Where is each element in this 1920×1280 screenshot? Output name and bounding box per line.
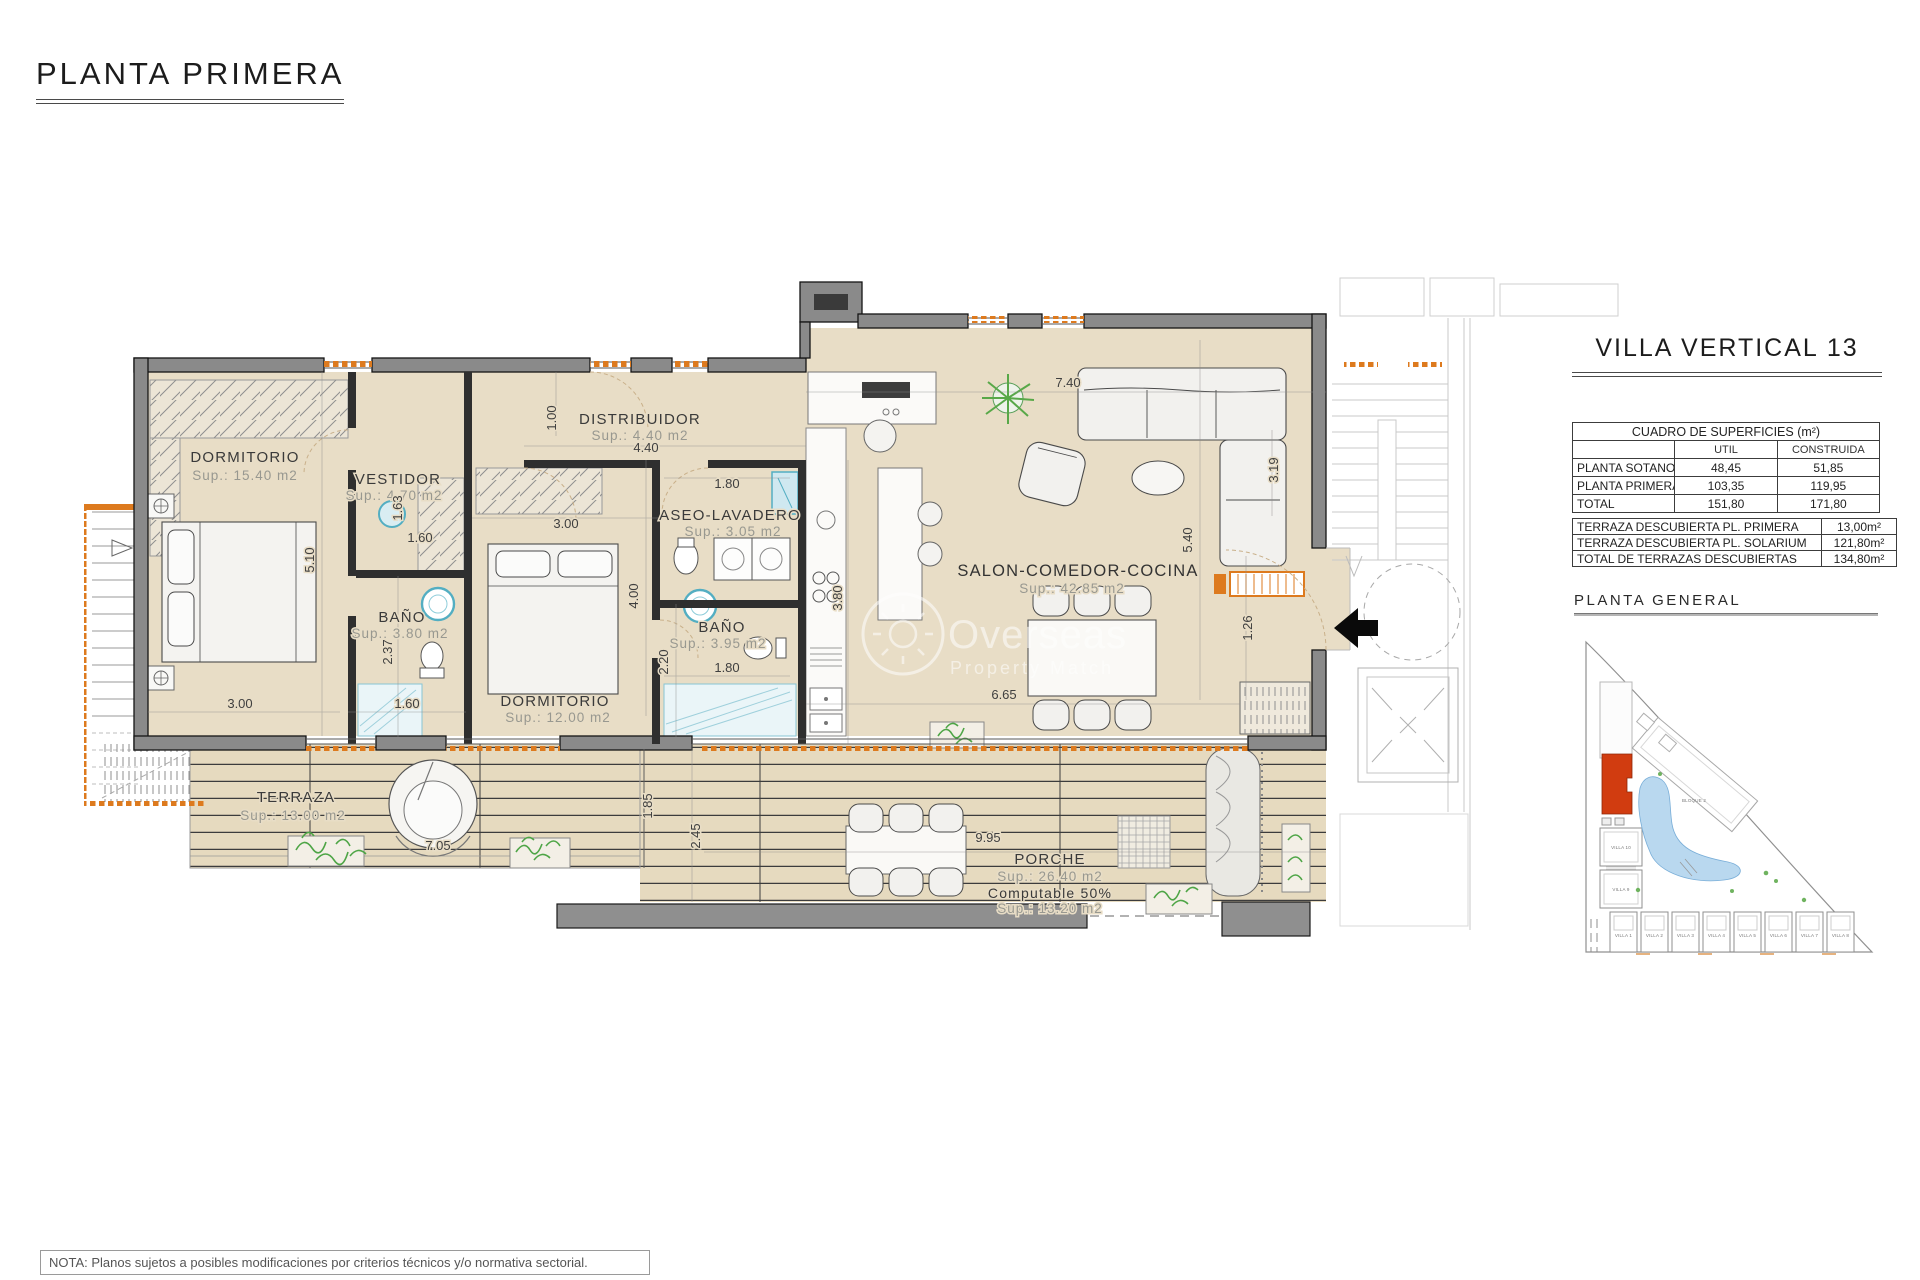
row-value: 134,80m² xyxy=(1822,551,1897,567)
svg-text:VILLA 5: VILLA 5 xyxy=(1739,933,1756,938)
svg-text:VILLA 6: VILLA 6 xyxy=(1770,933,1787,938)
room-name: DORMITORIO xyxy=(190,449,299,466)
dim: 4.00 xyxy=(626,583,641,608)
site-plan-title: PLANTA GENERAL xyxy=(1574,592,1878,614)
dim: 1.60 xyxy=(394,696,419,711)
dim: 1.80 xyxy=(714,660,739,675)
row-util: 48,45 xyxy=(1675,459,1777,477)
dim: 1.60 xyxy=(407,530,432,545)
site-building xyxy=(1600,682,1632,758)
dim: 2.45 xyxy=(688,823,703,848)
watermark-line1: Overseas xyxy=(948,613,1127,657)
room-sup: Sup.: 12.00 m2 xyxy=(505,710,611,725)
svg-text:VILLA 8: VILLA 8 xyxy=(1832,933,1849,938)
dim: 4.40 xyxy=(633,440,658,455)
room-sup: Sup.: 42.85 m2 xyxy=(1019,581,1125,596)
col-construida: CONSTRUIDA xyxy=(1777,441,1879,459)
room-name: SALON-COMEDOR-COCINA xyxy=(957,562,1198,580)
dim: 1.80 xyxy=(714,476,739,491)
extractor-icon xyxy=(814,294,848,310)
col-util: UTIL xyxy=(1675,441,1777,459)
dim: 1.00 xyxy=(544,405,559,430)
dim: 2.20 xyxy=(656,649,671,674)
terraces-table: TERRAZA DESCUBIERTA PL. PRIMERA 13,00m² … xyxy=(1572,518,1897,567)
table-row: TOTAL 151,80 171,80 xyxy=(1573,495,1880,513)
table-row: TOTAL DE TERRAZAS DESCUBIERTAS 134,80m² xyxy=(1573,551,1897,567)
svg-text:VILLA 9: VILLA 9 xyxy=(1612,887,1629,892)
bedroom2-furniture xyxy=(476,468,618,694)
row-construida: 51,85 xyxy=(1777,459,1879,477)
site-villa9: VILLA 9 xyxy=(1600,870,1642,908)
dim: 3.19 xyxy=(1266,457,1281,482)
site-villa10: VILLA 10 xyxy=(1600,828,1642,866)
dim: 5.10 xyxy=(302,547,317,572)
room-name: DORMITORIO xyxy=(500,693,609,710)
dim: 5.40 xyxy=(1180,527,1195,552)
svg-text:VILLA 3: VILLA 3 xyxy=(1677,933,1694,938)
note-box: NOTA: Planos sujetos a posibles modifica… xyxy=(40,1250,650,1275)
room-name: BAÑO xyxy=(378,609,425,626)
room-name: TERRAZA xyxy=(257,789,335,806)
surfaces-table: CUADRO DE SUPERFICIES (m²) UTIL CONSTRUI… xyxy=(1572,422,1880,513)
dim: 7.05 xyxy=(425,838,450,853)
room-name: ASEO-LAVADERO xyxy=(659,507,801,524)
dim: 2.37 xyxy=(380,639,395,664)
site-bloque2-label: BLOQUE 2 xyxy=(1682,798,1706,803)
table-row: TERRAZA DESCUBIERTA PL. SOLARIUM 121,80m… xyxy=(1573,535,1897,551)
room-sup: Sup.: 3.95 m2 xyxy=(669,636,766,651)
villa-title-underline xyxy=(1572,372,1882,377)
surfaces-table-title: CUADRO DE SUPERFICIES (m²) xyxy=(1573,423,1880,441)
room-sup: Sup.: 13.00 m2 xyxy=(240,808,346,823)
row-label: TOTAL DE TERRAZAS DESCUBIERTAS xyxy=(1573,551,1822,567)
row-value: 13,00m² xyxy=(1822,519,1897,535)
dim: 7.40 xyxy=(1055,375,1080,390)
title-underline xyxy=(36,99,344,104)
room-extra: Computable 50% xyxy=(988,885,1112,901)
svg-text:VILLA 1: VILLA 1 xyxy=(1615,933,1632,938)
room-sup: Sup.: 3.05 m2 xyxy=(684,524,781,539)
row-construida: 119,95 xyxy=(1777,477,1879,495)
dim: 3.00 xyxy=(227,696,252,711)
dim: 1.63 xyxy=(390,495,405,520)
site-plan: VILLA 10 VILLA 9 BLOQUE 2 xyxy=(1576,638,1881,956)
svg-text:VILLA 10: VILLA 10 xyxy=(1611,845,1631,850)
table-row: TERRAZA DESCUBIERTA PL. PRIMERA 13,00m² xyxy=(1573,519,1897,535)
row-label: PLANTA PRIMERA xyxy=(1573,477,1675,495)
row-value: 121,80m² xyxy=(1822,535,1897,551)
room-sup: Sup.: 26.40 m2 xyxy=(997,869,1103,884)
info-panel: VILLA VERTICAL 13 CUADRO DE SUPERFICIES … xyxy=(1572,334,1882,377)
room-extra: Sup.: 13.20 m2 xyxy=(997,901,1103,916)
dim: 1.85 xyxy=(640,793,655,818)
row-label: TERRAZA DESCUBIERTA PL. SOLARIUM xyxy=(1573,535,1822,551)
svg-text:VILLA 7: VILLA 7 xyxy=(1801,933,1818,938)
watermark-line2: Property Match xyxy=(950,658,1114,678)
svg-text:VILLA 4: VILLA 4 xyxy=(1708,933,1725,938)
table-row: PLANTA SOTANO 48,45 51,85 xyxy=(1573,459,1880,477)
dim: 9.95 xyxy=(975,830,1000,845)
row-util: 103,35 xyxy=(1675,477,1777,495)
room-name: PORCHE xyxy=(1014,851,1085,868)
room-name: DISTRIBUIDOR xyxy=(579,411,701,428)
dim: 3.00 xyxy=(553,516,578,531)
page: Overseas Property Match DORMITORIO Sup.:… xyxy=(0,0,1920,1280)
dim: 1.26 xyxy=(1240,615,1255,640)
table-row: PLANTA PRIMERA 103,35 119,95 xyxy=(1573,477,1880,495)
row-util: 151,80 xyxy=(1675,495,1777,513)
room-name: BAÑO xyxy=(698,619,745,636)
row-label: PLANTA SOTANO xyxy=(1573,459,1675,477)
page-title: PLANTA PRIMERA xyxy=(36,56,344,91)
villa-title: VILLA VERTICAL 13 xyxy=(1572,334,1882,363)
dim: 6.65 xyxy=(991,687,1016,702)
room-sup: Sup.: 15.40 m2 xyxy=(192,468,298,483)
room-name: VESTIDOR xyxy=(355,471,441,488)
note-text: NOTA: Planos sujetos a posibles modifica… xyxy=(49,1255,588,1270)
row-construida: 171,80 xyxy=(1777,495,1879,513)
dim: 3.80 xyxy=(830,585,845,610)
room-sup: Sup.: 3.80 m2 xyxy=(351,626,448,641)
page-title-block: PLANTA PRIMERA xyxy=(36,56,344,104)
svg-text:VILLA 2: VILLA 2 xyxy=(1646,933,1663,938)
row-label: TERRAZA DESCUBIERTA PL. PRIMERA xyxy=(1573,519,1822,535)
row-label: TOTAL xyxy=(1573,495,1675,513)
